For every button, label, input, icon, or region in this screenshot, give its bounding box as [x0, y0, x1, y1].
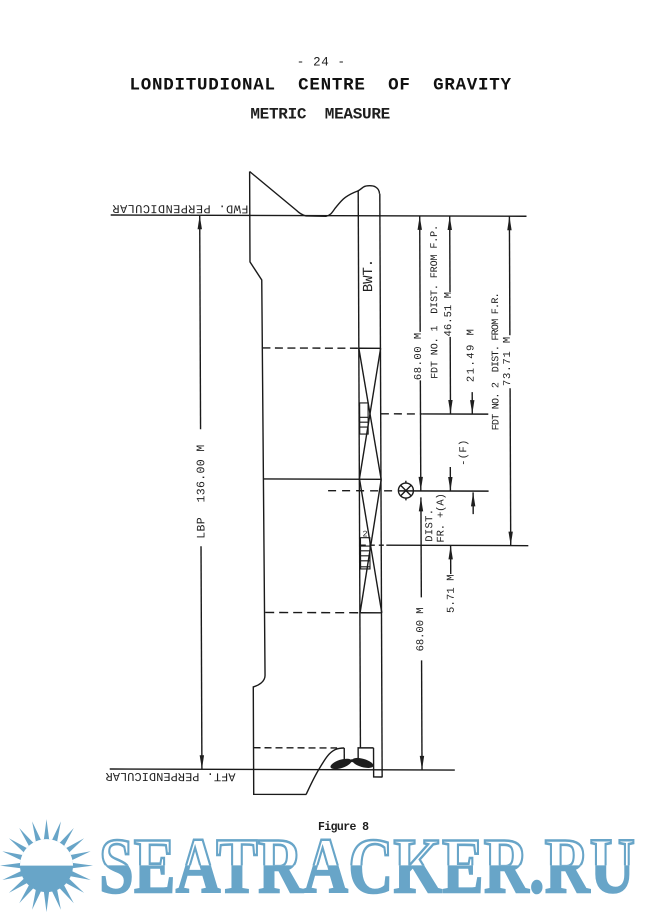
- svg-text:68.00 M: 68.00 M: [413, 333, 425, 380]
- svg-text:FR. +(A): FR. +(A): [436, 493, 448, 542]
- svg-text:AFT. PERPENDICULAR: AFT. PERPENDICULAR: [106, 769, 236, 783]
- svg-text:73.71 M: 73.71 M: [502, 337, 514, 386]
- svg-text:46.51 M: 46.51 M: [443, 292, 455, 337]
- svg-text:21.49 M: 21.49 M: [465, 329, 477, 382]
- svg-text:METRIC MEASURE: METRIC MEASURE: [250, 106, 390, 124]
- svg-text:-(F): -(F): [458, 440, 470, 466]
- svg-text:FDT NO. 1 DIST. FROM F.P.: FDT NO. 1 DIST. FROM F.P.: [430, 225, 442, 379]
- svg-text:LONDITUDIONAL CENTRE OF GRA: LONDITUDIONAL CENTRE OF GRAVITY: [130, 76, 512, 96]
- svg-text:LBP 136.00 M: LBP 136.00 M: [195, 445, 208, 539]
- svg-text:2: 2: [362, 529, 367, 539]
- svg-text:68.00 M: 68.00 M: [415, 607, 427, 651]
- svg-text:DIST.: DIST.: [424, 509, 436, 542]
- svg-text:BWT.: BWT.: [361, 259, 377, 292]
- svg-text:5.71 M: 5.71 M: [446, 574, 458, 613]
- svg-text:FDT NO. 2 DIST. FROM F.R.: FDT NO. 2 DIST. FROM F.R.: [491, 292, 503, 430]
- svg-text:- 24 -: - 24 -: [297, 56, 345, 70]
- svg-text:FWD. PERPENDICULAR: FWD. PERPENDICULAR: [112, 201, 248, 215]
